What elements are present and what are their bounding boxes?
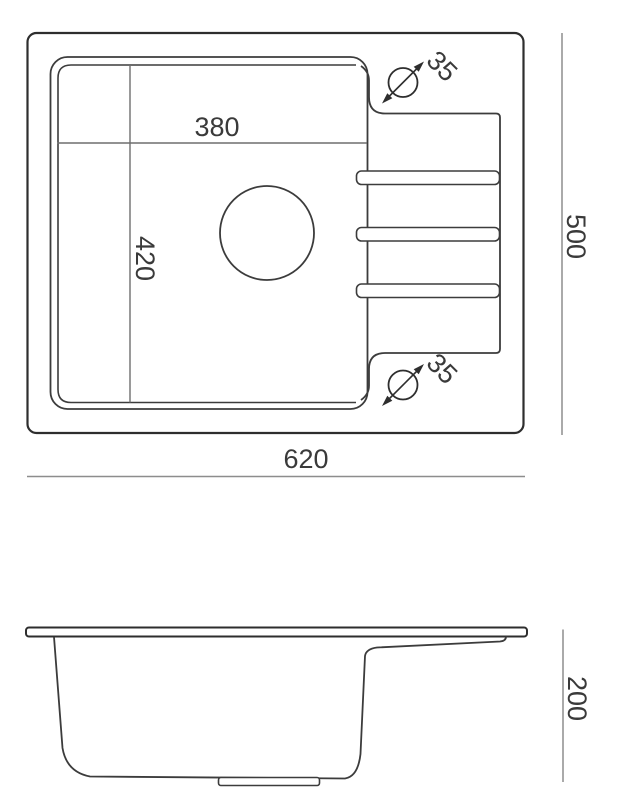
bowl-profile <box>54 637 506 779</box>
sink-technical-drawing: 380 420 35 3 <box>0 0 625 800</box>
dim-height: 200 <box>562 630 592 783</box>
dim-overall-depth-label: 500 <box>561 214 591 259</box>
rim-profile <box>26 628 527 637</box>
drain-hole <box>220 186 314 280</box>
top-view: 380 420 35 3 <box>27 33 591 477</box>
dim-overall-depth: 500 <box>561 33 591 435</box>
drainboard-rib <box>357 284 500 298</box>
drainboard-rib <box>357 228 500 242</box>
side-profile-view: 200 <box>26 628 592 786</box>
drainboard-rib <box>357 171 500 185</box>
drawing-svg: 380 420 35 3 <box>0 0 625 800</box>
dim-overall-width: 620 <box>27 444 525 477</box>
dim-basin-depth-label: 420 <box>130 236 160 281</box>
dim-basin-width-label: 380 <box>194 112 239 142</box>
dim-height-label: 200 <box>562 676 592 721</box>
dim-overall-width-label: 620 <box>283 444 328 474</box>
drain-boss <box>219 778 320 786</box>
